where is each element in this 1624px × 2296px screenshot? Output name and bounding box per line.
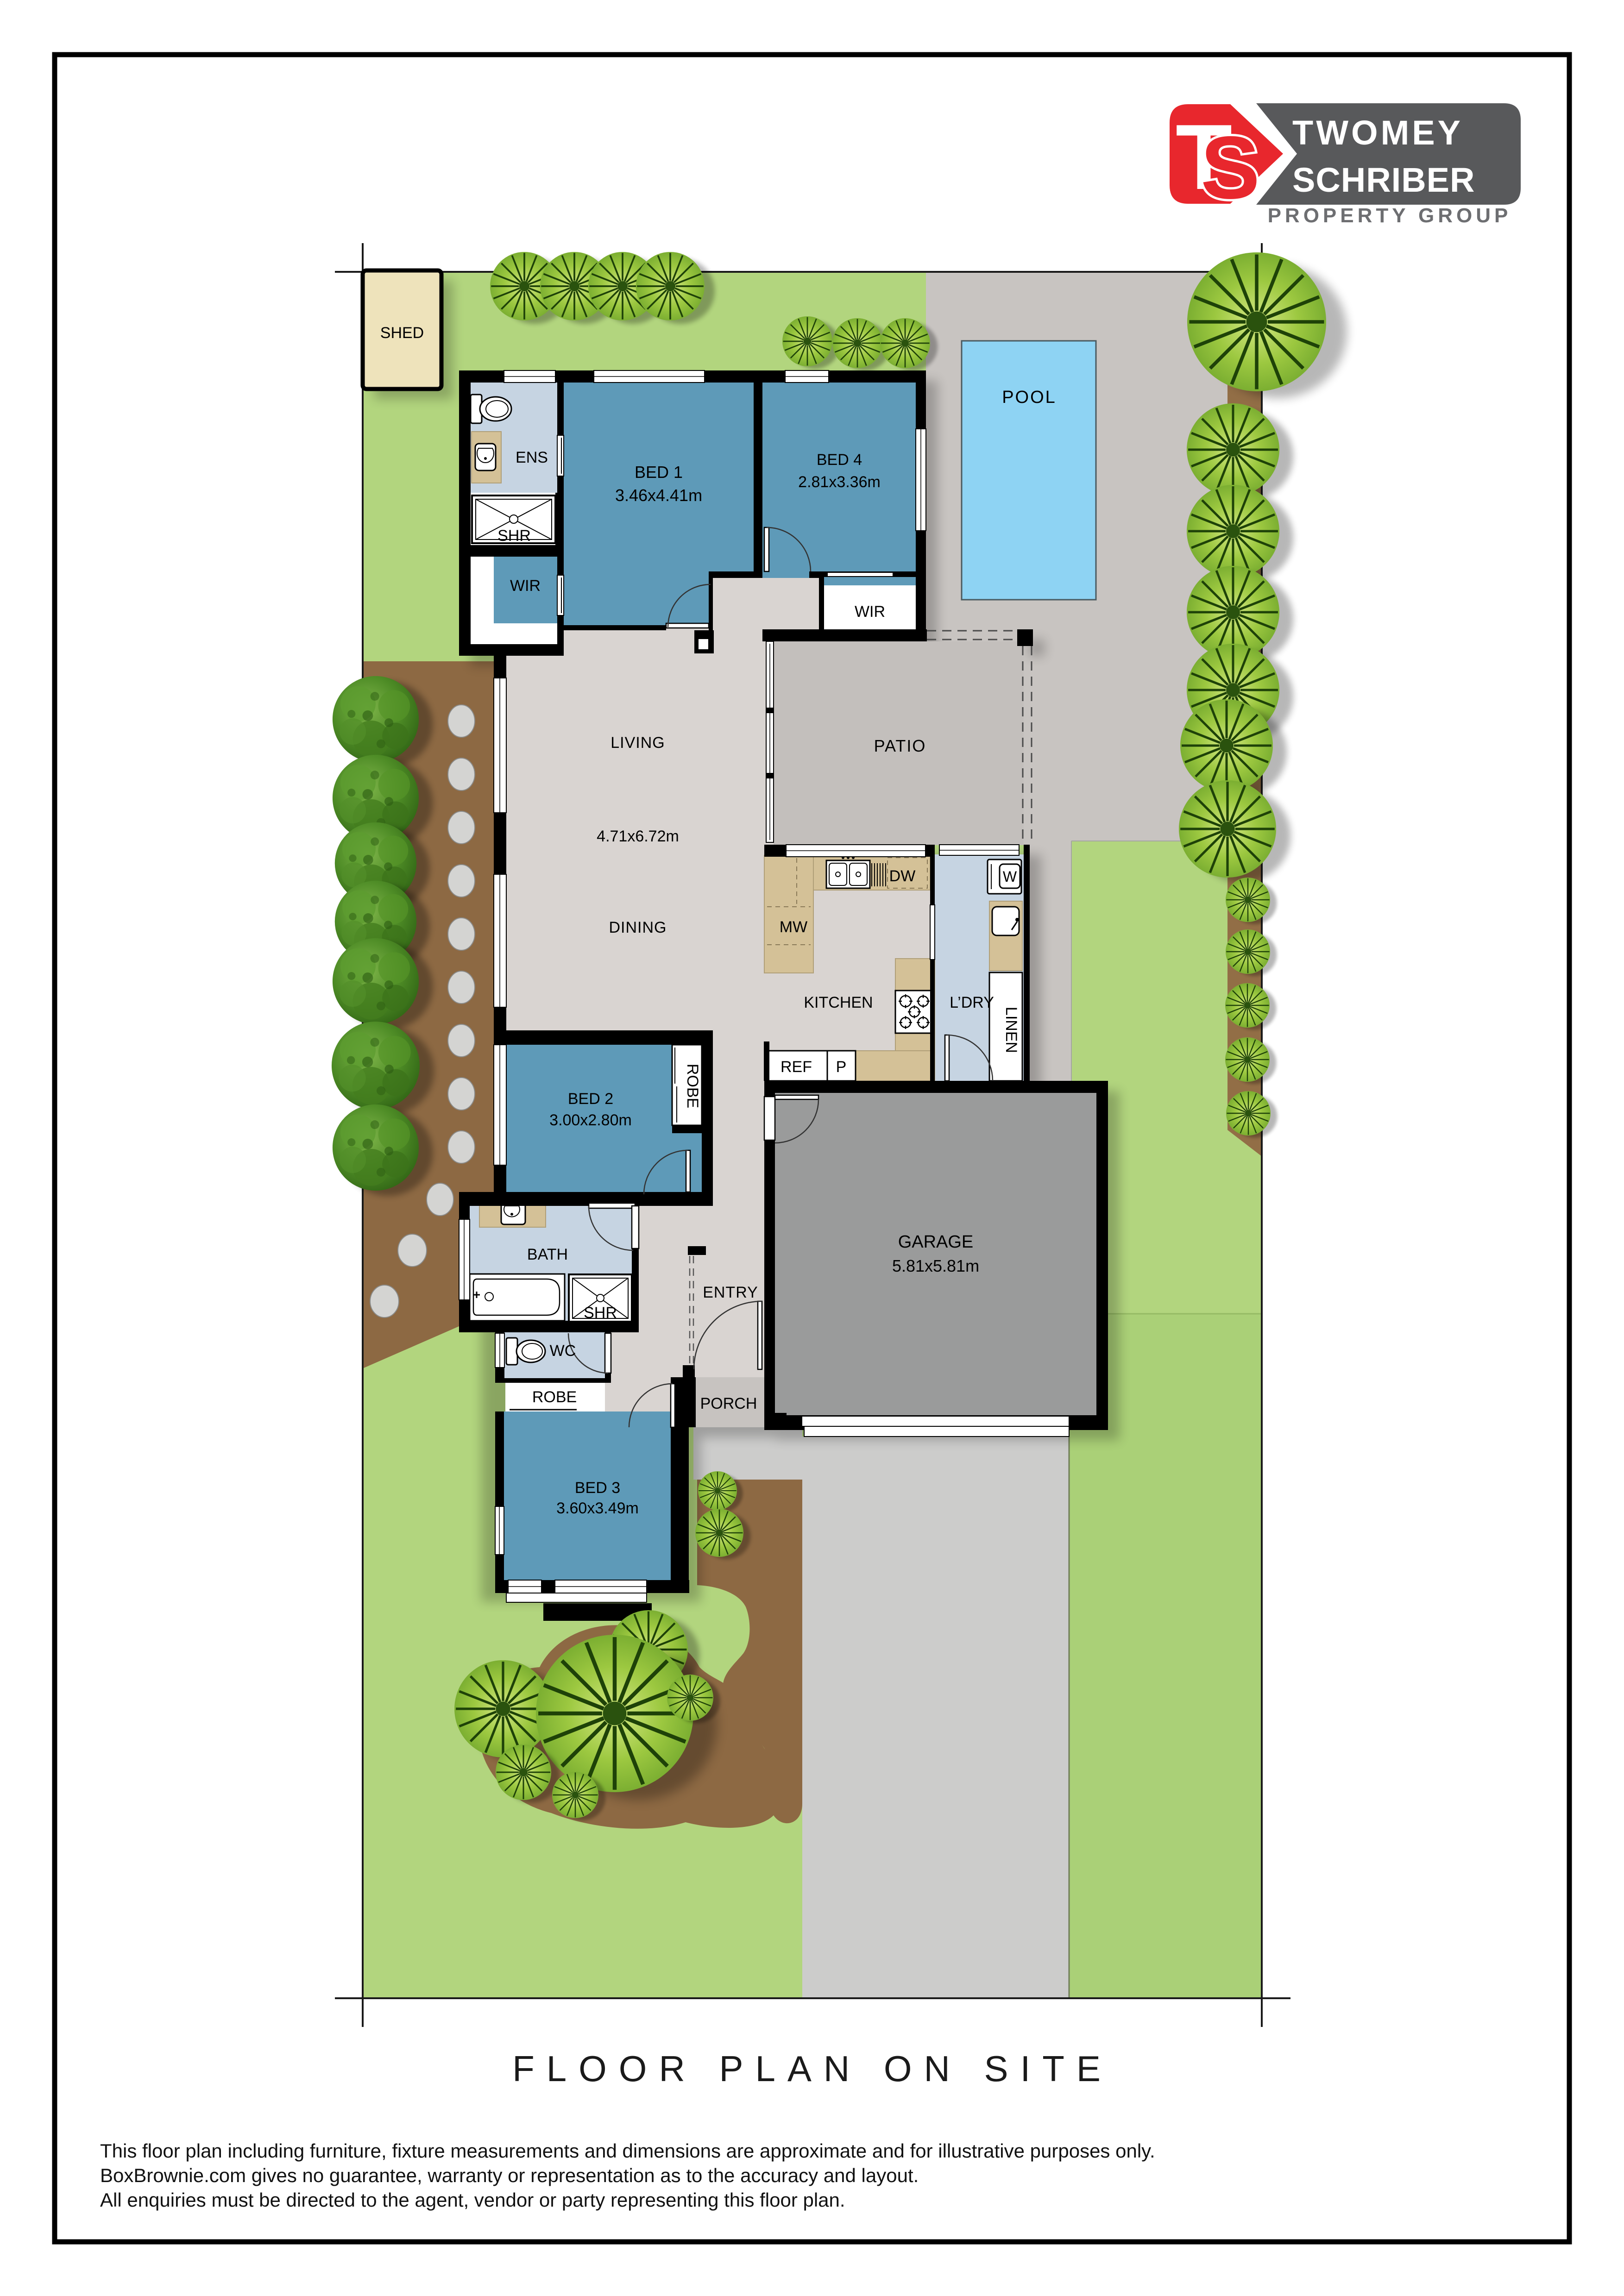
- svg-text:ROBE: ROBE: [684, 1064, 701, 1108]
- svg-text:SHR: SHR: [584, 1304, 617, 1322]
- svg-text:ENTRY: ENTRY: [703, 1284, 758, 1301]
- svg-text:P: P: [836, 1058, 847, 1076]
- svg-text:BoxBrownie.com gives no guaran: BoxBrownie.com gives no guarantee, warra…: [100, 2164, 919, 2186]
- svg-text:S: S: [1201, 118, 1260, 217]
- svg-text:SHR: SHR: [497, 527, 531, 545]
- svg-text:BED 4: BED 4: [817, 451, 862, 469]
- svg-text:L’DRY: L’DRY: [950, 994, 994, 1011]
- svg-text:WIR: WIR: [855, 603, 885, 621]
- svg-text:5.81x5.81m: 5.81x5.81m: [892, 1256, 979, 1275]
- svg-text:3.46x4.41m: 3.46x4.41m: [615, 486, 702, 505]
- svg-text:4.71x6.72m: 4.71x6.72m: [597, 828, 679, 845]
- svg-text:WC: WC: [550, 1342, 576, 1360]
- svg-text:PROPERTY GROUP: PROPERTY GROUP: [1268, 204, 1512, 227]
- svg-text:POOL: POOL: [1002, 388, 1057, 407]
- svg-text:3.00x2.80m: 3.00x2.80m: [549, 1111, 632, 1129]
- svg-text:PORCH: PORCH: [700, 1395, 757, 1412]
- svg-text:TWOMEY: TWOMEY: [1292, 113, 1463, 152]
- svg-text:KITCHEN: KITCHEN: [804, 994, 873, 1011]
- svg-text:W: W: [1003, 868, 1017, 885]
- svg-text:PATIO: PATIO: [874, 736, 926, 755]
- svg-text:LINEN: LINEN: [1002, 1007, 1020, 1053]
- svg-text:SHED: SHED: [380, 324, 424, 342]
- svg-text:WIR: WIR: [510, 577, 541, 595]
- svg-text:MW: MW: [780, 918, 807, 936]
- svg-text:3.60x3.49m: 3.60x3.49m: [556, 1499, 639, 1517]
- svg-text:LIVING: LIVING: [611, 734, 665, 752]
- svg-text:FLOOR PLAN ON SITE: FLOOR PLAN ON SITE: [512, 2048, 1113, 2089]
- svg-text:GARAGE: GARAGE: [898, 1232, 974, 1252]
- svg-text:DINING: DINING: [609, 919, 667, 936]
- svg-text:All enquiries must be directed: All enquiries must be directed to the ag…: [100, 2189, 845, 2211]
- svg-text:ROBE: ROBE: [532, 1388, 577, 1406]
- svg-text:ENS: ENS: [516, 449, 548, 466]
- svg-text:BED 2: BED 2: [568, 1090, 613, 1108]
- svg-text:BED 1: BED 1: [635, 463, 683, 482]
- svg-text:SCHRIBER: SCHRIBER: [1292, 161, 1475, 199]
- svg-text:BATH: BATH: [527, 1246, 568, 1263]
- svg-text:2.81x3.36m: 2.81x3.36m: [798, 473, 881, 491]
- svg-text:BED 3: BED 3: [575, 1479, 620, 1497]
- svg-text:REF: REF: [781, 1058, 812, 1076]
- svg-text:This floor plan including furn: This floor plan including furniture, fix…: [100, 2140, 1155, 2162]
- svg-text:DW: DW: [889, 867, 916, 885]
